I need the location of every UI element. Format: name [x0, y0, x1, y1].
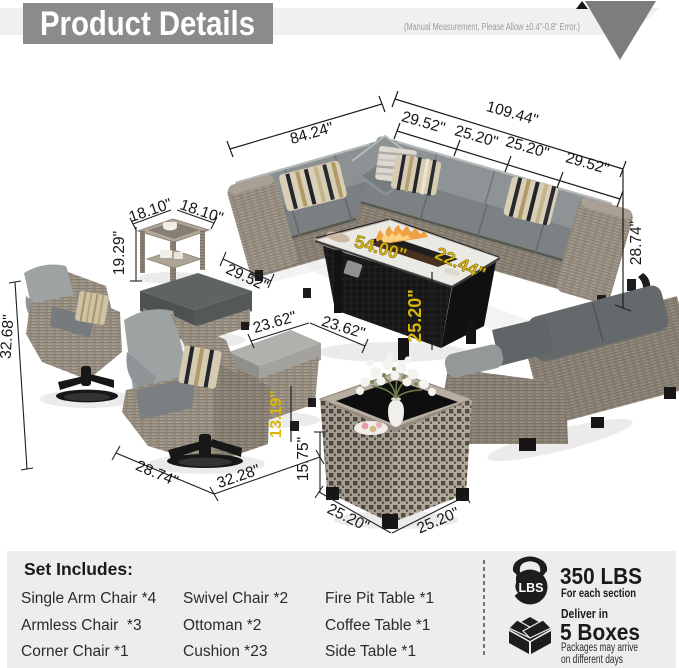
svg-text:Coffee Table *1: Coffee Table *1 — [325, 617, 430, 634]
svg-text:15.75": 15.75" — [295, 437, 312, 481]
svg-text:Corner Chair *1: Corner Chair *1 — [21, 643, 129, 660]
svg-text:LBS: LBS — [519, 581, 544, 595]
svg-text:32.68": 32.68" — [0, 314, 18, 359]
svg-text:Side Table *1: Side Table *1 — [325, 643, 416, 660]
svg-text:Swivel Chair *2: Swivel Chair *2 — [183, 590, 288, 607]
svg-text:Product Details: Product Details — [40, 5, 255, 43]
svg-text:Ottoman *2: Ottoman *2 — [183, 617, 261, 634]
svg-text:Armless Chair *3: Armless Chair *3 — [21, 617, 142, 634]
svg-text:19.29": 19.29" — [111, 231, 128, 275]
svg-text:(Manual Measurement, Please Al: (Manual Measurement, Please Allow ±0.4"-… — [404, 21, 580, 33]
svg-text:on different days: on different days — [561, 654, 623, 666]
svg-text:Cushion *23: Cushion *23 — [183, 643, 267, 660]
svg-text:13.19": 13.19" — [268, 390, 285, 438]
svg-text:For each section: For each section — [561, 586, 636, 600]
svg-text:Set Includes:: Set Includes: — [24, 559, 133, 579]
svg-text:Packages may arrive: Packages may arrive — [561, 642, 638, 654]
svg-text:Fire Pit Table *1: Fire Pit Table *1 — [325, 590, 434, 607]
svg-text:25.20": 25.20" — [405, 289, 425, 343]
svg-text:28.74": 28.74" — [628, 221, 645, 265]
svg-text:Single Arm Chair *4: Single Arm Chair *4 — [21, 590, 157, 607]
